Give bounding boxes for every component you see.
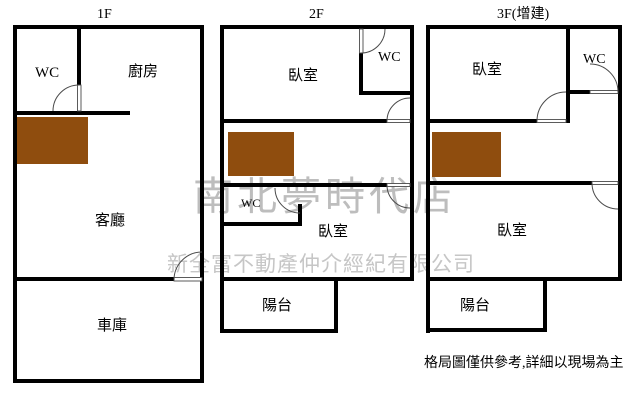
room-label-living: 客廳 [95, 214, 125, 229]
room-label-wc: WC [35, 66, 59, 81]
room-label-wc: WC [378, 51, 401, 65]
door-leaf [387, 120, 410, 123]
door-leaf [387, 184, 410, 187]
floor-plan-canvas: 南北夢時代店 新全富不動產仲介經紀有限公司 1F WC 廚房 客廳 車庫 2F [0, 0, 640, 401]
room-label-wc: WC [583, 53, 606, 67]
door-leaf [174, 278, 202, 282]
door-arc [387, 98, 410, 121]
door-leaf [590, 91, 618, 94]
room-label-garage: 車庫 [97, 319, 127, 334]
room-label-bedroom: 臥室 [288, 69, 318, 84]
door-leaf [360, 29, 364, 53]
door-symbols-layer [0, 0, 640, 401]
floor-3f-title: 3F(增建) [497, 8, 549, 22]
door-arc [592, 183, 618, 209]
door-arc [590, 64, 618, 92]
door-arc [537, 92, 566, 121]
floor-1f-title: 1F [97, 8, 112, 22]
door-leaf [537, 120, 566, 123]
room-label-balcony: 陽台 [460, 299, 490, 314]
door-leaf [78, 85, 82, 111]
disclaimer-text: 格局圖僅供參考,詳細以現場為主 [424, 352, 624, 372]
room-label-balcony: 陽台 [262, 299, 292, 314]
room-label-wc: WC [241, 197, 260, 209]
door-arc [174, 252, 202, 280]
room-label-bedroom: 臥室 [497, 224, 527, 239]
door-arc [275, 188, 300, 213]
room-label-bedroom: 臥室 [318, 225, 348, 240]
door-leaf [592, 182, 618, 185]
door-arc [387, 185, 410, 208]
door-arc [53, 85, 79, 111]
room-label-kitchen: 廚房 [128, 65, 158, 80]
room-label-bedroom: 臥室 [472, 63, 502, 78]
floor-2f-title: 2F [309, 8, 324, 22]
